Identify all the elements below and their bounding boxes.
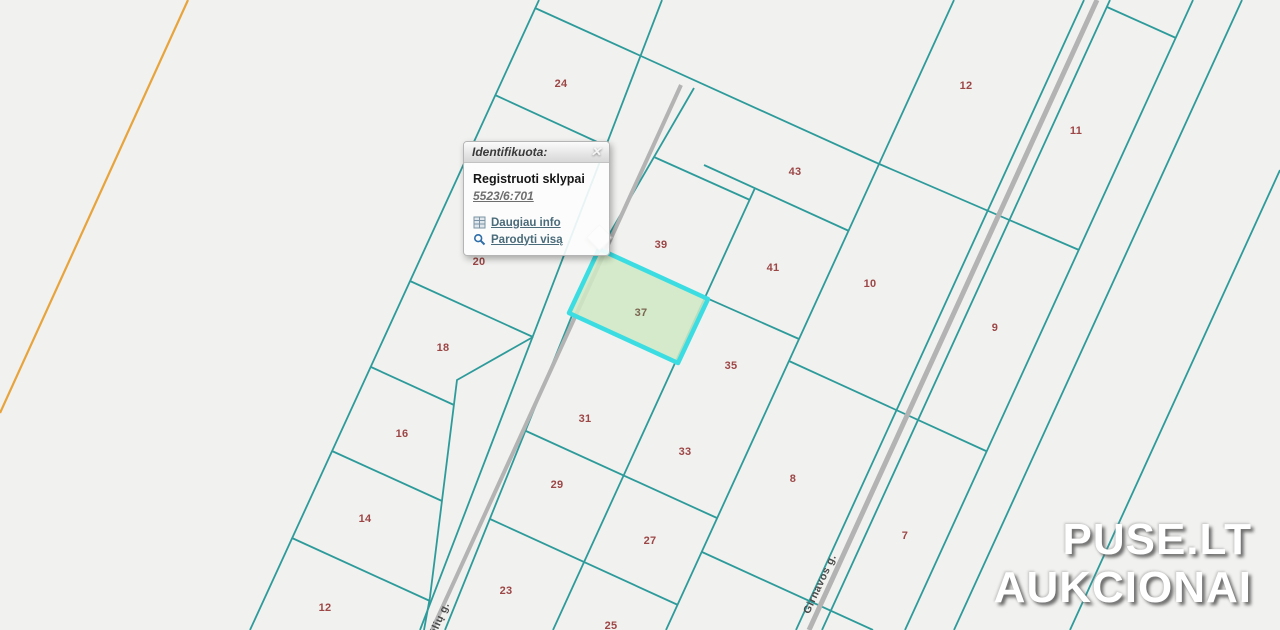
parcel-label: 14 (359, 513, 372, 525)
parcel-label: 8 (790, 473, 796, 485)
parcel-label: 9 (992, 322, 998, 334)
parcel-label: 11 (1070, 125, 1082, 137)
parcel-label-highlighted: 37 (635, 307, 648, 319)
orange-boundary-line (0, 0, 188, 413)
parcel-label: 10 (864, 278, 877, 290)
parcel-label: 31 (579, 413, 592, 425)
parcel-label: 39 (655, 239, 668, 251)
popup-layer-name: Registruoti sklypai (473, 172, 600, 186)
popup-title: Identifikuota: (472, 145, 547, 159)
highlighted-parcel-37[interactable] (569, 249, 708, 363)
parcel-label: 12 (960, 80, 973, 92)
daugiau-info-link[interactable]: Daugiau info (473, 216, 600, 229)
info-grid-icon (473, 216, 486, 229)
close-icon[interactable]: ✕ (588, 142, 604, 162)
parcel-label: 18 (437, 342, 450, 354)
parcel-label: 7 (902, 530, 908, 542)
parcel-label: 23 (500, 585, 513, 597)
parcel-label: 16 (396, 428, 409, 440)
parcel-label: 41 (767, 262, 780, 274)
popup-header: Identifikuota: ✕ (464, 142, 609, 163)
daugiau-info-label: Daugiau info (491, 217, 561, 229)
map-viewport[interactable]: 24 20 18 16 14 12 39 37 31 29 23 25 41 3… (0, 0, 1280, 630)
parcel-label: 12 (319, 602, 332, 614)
parcel-label: 29 (551, 479, 564, 491)
feature-id-link[interactable]: 5523/6:701 (473, 189, 534, 203)
parcel-label: 25 (605, 620, 618, 630)
watermark: PUSE.LT AUKCIONAI (994, 516, 1252, 612)
parodyti-visa-label: Parodyti visą (491, 234, 563, 246)
popup-body: Registruoti sklypai 5523/6:701 Daugiau i… (464, 163, 609, 255)
parcel-label: 43 (789, 166, 802, 178)
magnifier-icon (473, 233, 486, 246)
parodyti-visa-link[interactable]: Parodyti visą (473, 233, 600, 246)
identify-popup: Identifikuota: ✕ Registruoti sklypai 552… (463, 141, 610, 256)
watermark-line1: PUSE.LT (994, 516, 1252, 564)
parcel-label: 35 (725, 360, 738, 372)
parcel-label: 20 (473, 256, 486, 268)
parcel-label: 27 (644, 535, 657, 547)
parcel-label: 33 (679, 446, 692, 458)
parcel-label: 24 (555, 78, 568, 90)
watermark-line2: AUKCIONAI (994, 564, 1252, 612)
